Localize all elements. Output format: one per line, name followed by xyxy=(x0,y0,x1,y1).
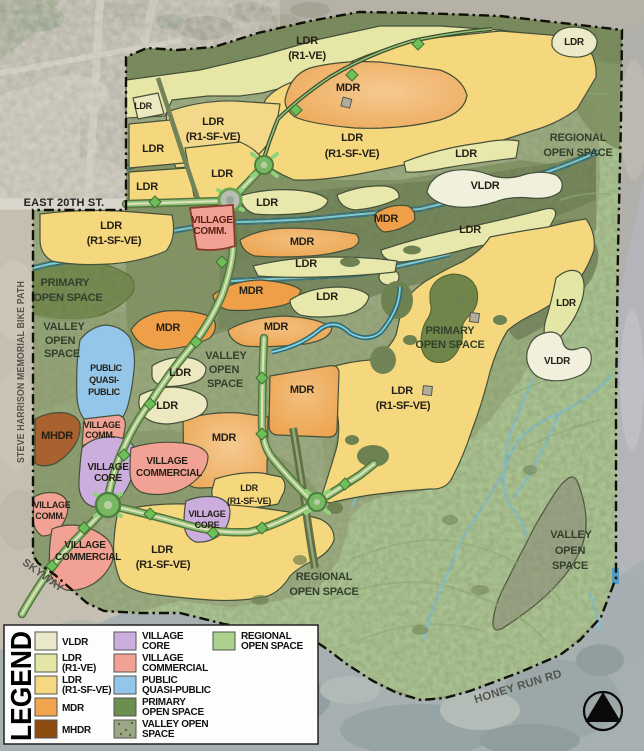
svg-text:COMM.: COMM. xyxy=(85,430,115,440)
svg-text:MDR: MDR xyxy=(156,322,181,334)
svg-text:(R1-SF-VE): (R1-SF-VE) xyxy=(325,148,380,160)
svg-text:(R1-VE): (R1-VE) xyxy=(62,663,96,674)
svg-text:LDR: LDR xyxy=(391,385,413,397)
svg-text:VILLAGE: VILLAGE xyxy=(84,420,121,430)
svg-text:LDR: LDR xyxy=(459,224,481,236)
svg-text:VILLAGE: VILLAGE xyxy=(146,456,188,467)
svg-text:LDR: LDR xyxy=(556,298,577,309)
svg-text:STEVE HARRISON MEMORIAL BIKE P: STEVE HARRISON MEMORIAL BIKE PATH xyxy=(15,281,27,463)
svg-text:VLDR: VLDR xyxy=(471,180,500,192)
svg-text:OPEN SPACE: OPEN SPACE xyxy=(289,586,358,598)
svg-text:LDR: LDR xyxy=(316,291,338,303)
svg-text:COMM.: COMM. xyxy=(35,511,65,521)
svg-text:SPACE: SPACE xyxy=(142,729,175,740)
svg-text:VALLEY: VALLEY xyxy=(550,529,592,541)
svg-text:(R1-SF-VE): (R1-SF-VE) xyxy=(376,400,431,412)
svg-text:MHDR: MHDR xyxy=(62,725,92,736)
svg-text:MDR: MDR xyxy=(290,384,315,396)
svg-text:LDR: LDR xyxy=(341,132,363,144)
svg-text:VLDR: VLDR xyxy=(62,637,89,648)
svg-text:PUBLIC: PUBLIC xyxy=(90,363,123,373)
svg-text:VILLAGE: VILLAGE xyxy=(191,215,233,226)
svg-text:(R1-SF-VE): (R1-SF-VE) xyxy=(227,496,271,506)
svg-text:LDR: LDR xyxy=(202,116,224,128)
svg-text:(R1-SF-VE): (R1-SF-VE) xyxy=(136,559,191,571)
svg-text:OPEN: OPEN xyxy=(209,364,240,376)
svg-text:CORE: CORE xyxy=(195,520,220,530)
svg-text:OPEN SPACE: OPEN SPACE xyxy=(33,292,102,304)
svg-text:LDR: LDR xyxy=(136,181,158,193)
svg-text:REGIONAL: REGIONAL xyxy=(550,132,607,144)
svg-text:LDR: LDR xyxy=(142,143,164,155)
svg-text:MDR: MDR xyxy=(374,213,399,225)
svg-text:(R1-VE): (R1-VE) xyxy=(288,50,326,62)
svg-text:COMMERCIAL: COMMERCIAL xyxy=(142,663,208,674)
svg-text:MDR: MDR xyxy=(264,321,289,333)
svg-text:LDR: LDR xyxy=(240,483,258,493)
svg-text:LDR: LDR xyxy=(296,35,318,47)
svg-text:PRIMARY: PRIMARY xyxy=(426,325,476,337)
svg-text:SPACE: SPACE xyxy=(44,348,80,360)
svg-text:(R1-SF-VE): (R1-SF-VE) xyxy=(186,131,241,143)
svg-text:VALLEY: VALLEY xyxy=(205,350,247,362)
svg-text:(R1-SF-VE): (R1-SF-VE) xyxy=(87,235,142,247)
svg-text:VLDR: VLDR xyxy=(544,356,571,367)
svg-text:MHDR: MHDR xyxy=(41,430,73,442)
svg-text:VILLAGE: VILLAGE xyxy=(34,500,71,510)
svg-text:SPACE: SPACE xyxy=(207,378,243,390)
svg-text:LDR: LDR xyxy=(151,544,173,556)
svg-text:LDR: LDR xyxy=(169,367,191,379)
svg-text:VILLAGE: VILLAGE xyxy=(64,540,106,551)
svg-text:QUASI-: QUASI- xyxy=(89,375,119,385)
svg-text:OPEN: OPEN xyxy=(45,335,76,347)
svg-text:PUBLIC: PUBLIC xyxy=(88,387,121,397)
svg-text:OPEN SPACE: OPEN SPACE xyxy=(241,641,303,652)
svg-text:MDR: MDR xyxy=(336,82,361,94)
svg-text:VILLAGE: VILLAGE xyxy=(87,462,129,473)
svg-text:LDR: LDR xyxy=(564,37,585,48)
svg-text:MDR: MDR xyxy=(212,432,237,444)
svg-text:QUASI-PUBLIC: QUASI-PUBLIC xyxy=(142,685,211,696)
svg-text:OPEN SPACE: OPEN SPACE xyxy=(543,147,612,159)
svg-text:VILLAGE: VILLAGE xyxy=(189,509,226,519)
svg-text:LDR: LDR xyxy=(100,220,122,232)
svg-text:OPEN SPACE: OPEN SPACE xyxy=(142,707,204,718)
svg-text:SPACE: SPACE xyxy=(552,560,588,572)
svg-text:LDR: LDR xyxy=(156,400,178,412)
svg-text:MDR: MDR xyxy=(290,236,315,248)
svg-text:COMMERCIAL: COMMERCIAL xyxy=(55,552,121,563)
svg-text:CORE: CORE xyxy=(142,641,170,652)
svg-text:LDR: LDR xyxy=(455,148,477,160)
svg-text:MDR: MDR xyxy=(239,285,264,297)
svg-text:COMM.: COMM. xyxy=(194,226,227,237)
svg-text:(R1-SF-VE): (R1-SF-VE) xyxy=(62,685,111,696)
svg-text:EAST 20TH ST.: EAST 20TH ST. xyxy=(24,197,105,209)
svg-text:REGIONAL: REGIONAL xyxy=(296,571,353,583)
svg-text:MDR: MDR xyxy=(62,703,85,714)
svg-text:OPEN: OPEN xyxy=(555,545,586,557)
svg-text:PRIMARY: PRIMARY xyxy=(41,277,91,289)
svg-text:LDR: LDR xyxy=(256,197,278,209)
svg-text:CORE: CORE xyxy=(94,473,122,484)
svg-text:LDR: LDR xyxy=(295,258,317,270)
svg-text:LDR: LDR xyxy=(134,101,152,111)
svg-text:VALLEY: VALLEY xyxy=(43,321,85,333)
svg-text:OPEN SPACE: OPEN SPACE xyxy=(415,339,484,351)
svg-text:LEGEND: LEGEND xyxy=(6,631,38,741)
svg-text:COMMERCIAL: COMMERCIAL xyxy=(136,468,202,479)
svg-text:LDR: LDR xyxy=(211,168,233,180)
